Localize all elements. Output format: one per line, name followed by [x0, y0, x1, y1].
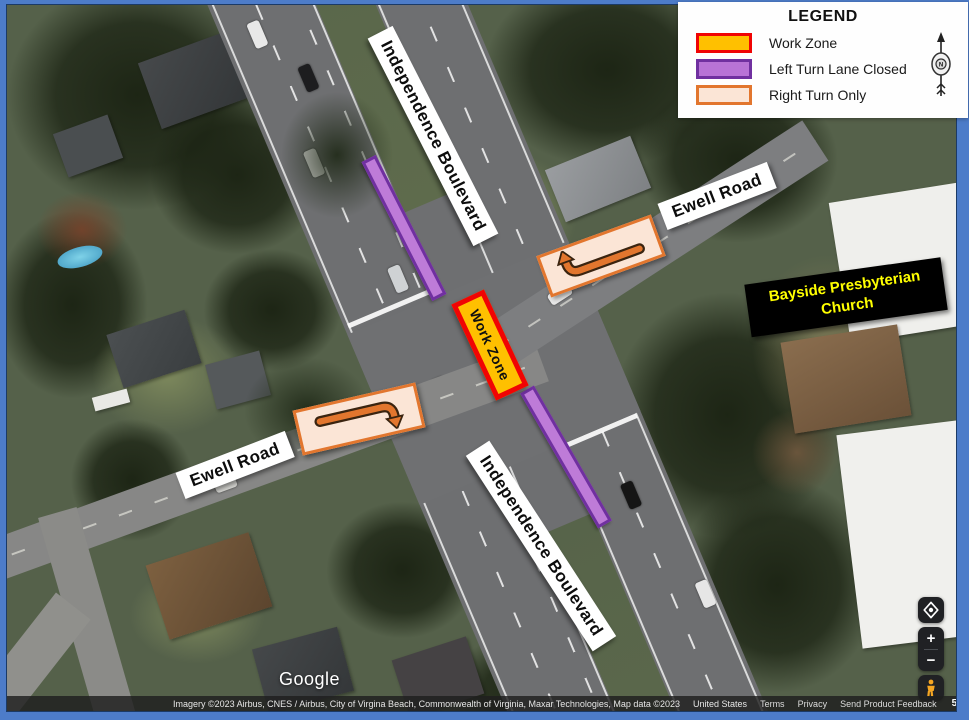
zoom-out-button[interactable]: −	[918, 650, 944, 671]
church-building	[781, 324, 912, 433]
scale-label: 50 ft	[952, 698, 956, 709]
screenshot-root: { "legend": { "title": "LEGEND", "items"…	[0, 0, 969, 720]
imagery-credit: Imagery ©2023 Airbus, CNES / Airbus, Cit…	[173, 699, 680, 709]
legend-item-label: Work Zone	[769, 35, 837, 51]
vehicle	[620, 480, 643, 510]
terms-link[interactable]: Terms	[760, 699, 785, 709]
google-watermark[interactable]: Google	[279, 669, 340, 690]
my-location-button[interactable]	[918, 597, 944, 623]
zoom-control: + −	[918, 627, 944, 671]
map-scale: 50 ft	[952, 698, 956, 709]
pegman-icon	[923, 679, 939, 697]
privacy-link[interactable]: Privacy	[798, 699, 828, 709]
legend-title: LEGEND	[678, 8, 968, 26]
north-arrow-icon: N	[926, 30, 956, 113]
feedback-link[interactable]: Send Product Feedback	[840, 699, 937, 709]
autumn-tree-patch	[17, 175, 147, 285]
my-location-icon	[920, 599, 942, 621]
vehicle	[387, 264, 410, 294]
legend-panel: LEGEND Work Zone Left Turn Lane Closed R…	[678, 2, 968, 118]
attribution-bar: Imagery ©2023 Airbus, CNES / Airbus, Cit…	[7, 696, 956, 711]
work-zone-swatch	[696, 33, 752, 53]
legend-item-label: Left Turn Lane Closed	[769, 61, 907, 77]
legend-item-label: Right Turn Only	[769, 87, 866, 103]
svg-text:N: N	[939, 63, 943, 69]
region-label: United States	[693, 699, 747, 709]
left-turn-lane-closed-swatch	[696, 59, 752, 79]
right-turn-only-swatch	[696, 85, 752, 105]
zoom-in-button[interactable]: +	[918, 628, 944, 649]
